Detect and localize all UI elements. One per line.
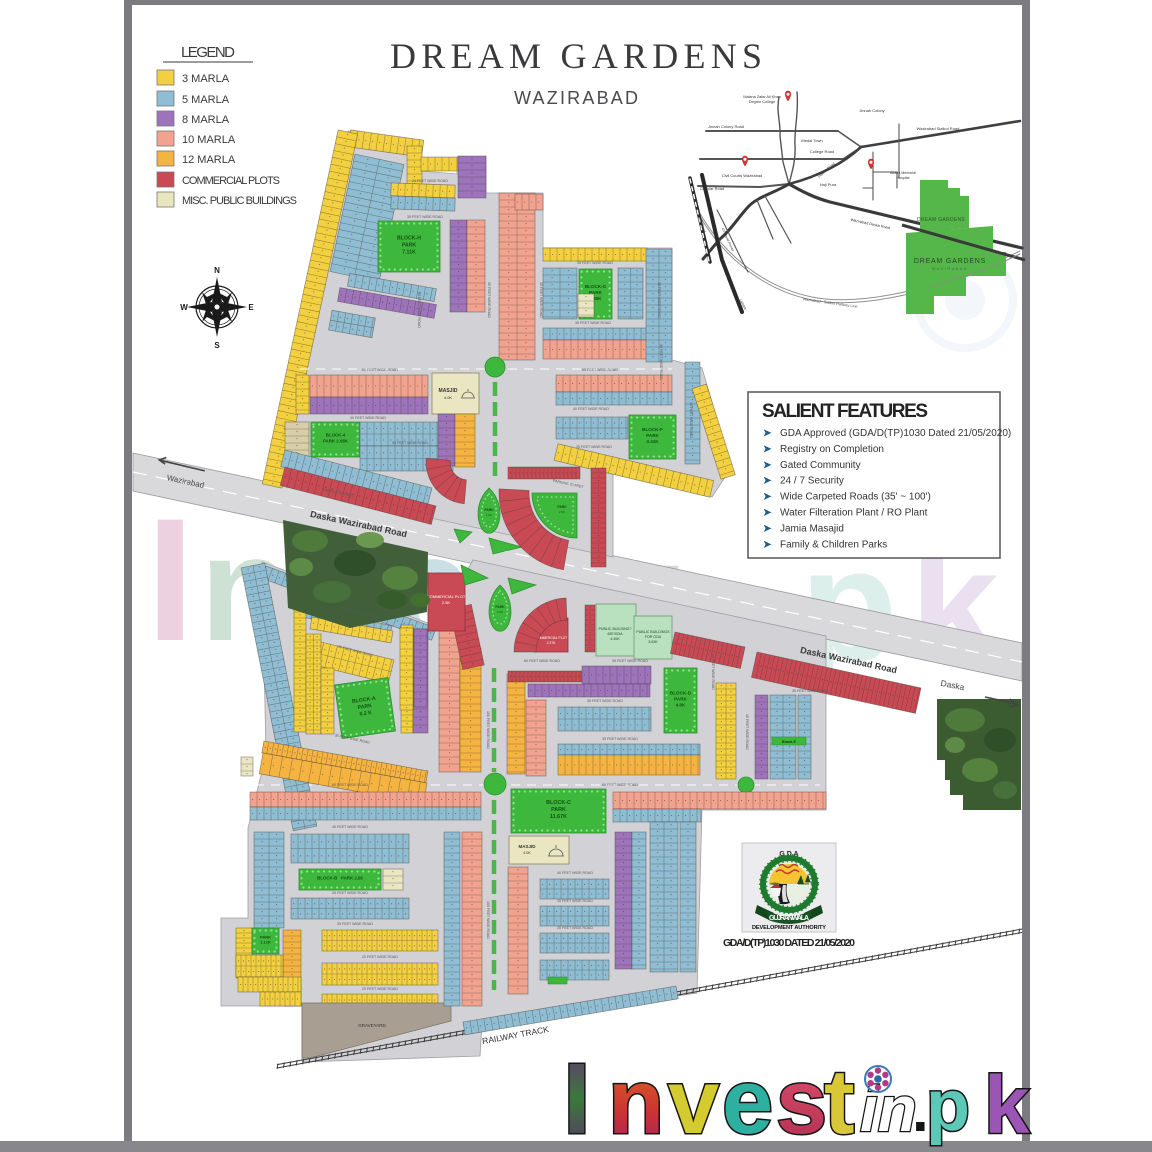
svg-text:35 FEET WIDE ROAD: 35 FEET WIDE ROAD [576, 445, 612, 449]
svg-text:PARK: PARK [674, 697, 687, 702]
svg-text:Gated Community: Gated Community [780, 460, 861, 471]
svg-text:4.0K: 4.0K [523, 851, 531, 855]
svg-text:➤: ➤ [763, 460, 772, 471]
svg-text:n: n [608, 1051, 664, 1152]
svg-text:35 FEET WIDE ROAD: 35 FEET WIDE ROAD [539, 282, 543, 318]
svg-text:BLOCK-C: BLOCK-C [546, 800, 571, 806]
svg-text:35 FEET WIDE ROAD: 35 FEET WIDE ROAD [602, 737, 638, 741]
svg-text:35 FEET WIDE ROAD: 35 FEET WIDE ROAD [487, 282, 491, 318]
svg-text:S: S [214, 341, 220, 350]
svg-text:Medal Town: Medal Town [801, 138, 822, 143]
svg-text:Wazirabad Sialkot Road: Wazirabad Sialkot Road [917, 126, 960, 131]
svg-text:FOR GDA: FOR GDA [645, 635, 662, 639]
svg-text:DREAM GARDENS: DREAM GARDENS [917, 217, 965, 223]
svg-text:3 MARLA: 3 MARLA [182, 73, 230, 85]
svg-text:MISC. PUBLIC BUILDINGS: MISC. PUBLIC BUILDINGS [182, 195, 297, 207]
svg-text:➤: ➤ [763, 508, 772, 519]
svg-text:➤: ➤ [763, 492, 772, 503]
svg-text:2.27K: 2.27K [547, 641, 557, 645]
svg-text:35 FEET WIDE ROAD: 35 FEET WIDE ROAD [392, 441, 428, 445]
svg-text:3.63K: 3.63K [648, 640, 658, 644]
svg-text:SALIENT FEATURES: SALIENT FEATURES [762, 401, 928, 422]
svg-text:I: I [146, 483, 195, 678]
svg-text:GRAVEYARD: GRAVEYARD [358, 1023, 386, 1028]
svg-text:40 FEET WIDE ROAD: 40 FEET WIDE ROAD [573, 407, 609, 411]
svg-text:35 FEET WIDE ROAD: 35 FEET WIDE ROAD [577, 261, 613, 265]
svg-text:100 FEET WIDE ROAD: 100 FEET WIDE ROAD [486, 901, 490, 939]
svg-text:25 FEET WIDE ROAD: 25 FEET WIDE ROAD [332, 891, 368, 895]
svg-text:35 FEET WIDE ROAD: 35 FEET WIDE ROAD [407, 215, 443, 219]
svg-text:Haji Pura: Haji Pura [820, 182, 837, 187]
svg-text:PARK 2.08K: PARK 2.08K [323, 438, 349, 443]
svg-text:LEGEND: LEGEND [181, 44, 235, 61]
svg-text:10 MARLA: 10 MARLA [182, 134, 236, 146]
svg-text:40 FEET WIDE ROAD: 40 FEET WIDE ROAD [557, 871, 593, 875]
svg-text:4.0K: 4.0K [676, 703, 686, 708]
svg-text:20 FEET WIDE ROAD: 20 FEET WIDE ROAD [362, 955, 398, 959]
svg-text:Circular Road: Circular Road [700, 186, 724, 191]
svg-text:35 FEET WIDE ROAD: 35 FEET WIDE ROAD [557, 899, 593, 903]
svg-text:➤: ➤ [763, 476, 772, 487]
svg-text:Attava Memorial: Attava Memorial [890, 171, 916, 175]
svg-text:Water Filteration Plant / RO P: Water Filteration Plant / RO Plant [780, 508, 928, 519]
svg-text:I: I [563, 1043, 591, 1152]
svg-text:k: k [984, 1060, 1030, 1151]
svg-text:PARK: PARK [495, 605, 505, 609]
svg-text:60 FEET WIDE ROAD: 60 FEET WIDE ROAD [362, 368, 398, 372]
svg-text:BLOCK-G: BLOCK-G [585, 284, 607, 289]
svg-text:➤: ➤ [763, 539, 772, 550]
svg-text:p: p [926, 1066, 970, 1146]
svg-text:Jinnah Colony Road: Jinnah Colony Road [708, 124, 744, 129]
svg-text:40 FEET WIDE ROAD: 40 FEET WIDE ROAD [745, 714, 749, 750]
svg-text:4.0K: 4.0K [444, 395, 453, 400]
svg-text:t: t [824, 1051, 855, 1152]
svg-text:BLOCK-D: BLOCK-D [670, 691, 692, 696]
svg-text:2.5K: 2.5K [442, 600, 451, 605]
svg-text:COMMERCIAL PLOTS: COMMERCIAL PLOTS [182, 175, 280, 187]
svg-text:W: W [180, 303, 188, 312]
svg-text:PARK: PARK [484, 508, 494, 512]
svg-text:1.12K: 1.12K [260, 940, 271, 945]
svg-text:40 FEET WIDE ROAD: 40 FEET WIDE ROAD [350, 416, 386, 420]
svg-text:GDA/D(TP)1030 DATED 21/05/2020: GDA/D(TP)1030 DATED 21/05/2020 [723, 937, 855, 949]
svg-text:E: E [248, 303, 254, 312]
svg-text:BLOCK-H: BLOCK-H [397, 236, 421, 242]
svg-text:PARK: PARK [551, 807, 566, 813]
svg-text:Block-E: Block-E [782, 740, 797, 744]
svg-text:Malana Zafar Ali Khan: Malana Zafar Ali Khan [743, 95, 780, 99]
svg-text:Civil Courts Wazirabad: Civil Courts Wazirabad [722, 173, 763, 178]
svg-text:60 FEET WIDE ROAD: 60 FEET WIDE ROAD [524, 659, 560, 663]
svg-text:s: s [776, 1051, 827, 1152]
svg-text:65 FEET WIDE ROAD: 65 FEET WIDE ROAD [582, 368, 618, 372]
svg-text:7.11K: 7.11K [402, 249, 416, 255]
svg-text:40 FEET WIDE ROAD: 40 FEET WIDE ROAD [332, 825, 368, 829]
svg-text:BLOCK-F: BLOCK-F [642, 427, 663, 432]
svg-text:65F/GDA: 65F/GDA [608, 632, 624, 636]
svg-text:25 FEET WIDE ROAD: 25 FEET WIDE ROAD [557, 926, 593, 930]
svg-text:8 MARLA: 8 MARLA [182, 114, 230, 126]
svg-text:35 FEET WIDE ROAD: 35 FEET WIDE ROAD [657, 282, 661, 318]
svg-text:2.0K: 2.0K [497, 610, 503, 614]
svg-text:BLOCK-B PARK 2.66: BLOCK-B PARK 2.66 [317, 876, 363, 881]
svg-text:1.0K: 1.0K [486, 513, 492, 517]
svg-text:v: v [668, 1051, 719, 1152]
svg-text:5 MARLA: 5 MARLA [182, 94, 230, 106]
svg-text:100 FEET WIDE ROAD: 100 FEET WIDE ROAD [486, 711, 490, 749]
svg-text:Degree College: Degree College [749, 100, 775, 104]
svg-text:35 FEET WIDE ROAD: 35 FEET WIDE ROAD [417, 292, 421, 328]
svg-text:➤: ➤ [763, 428, 772, 439]
svg-text:PUBLIC BUILDING?: PUBLIC BUILDING? [599, 627, 632, 631]
svg-text:24 / 7 Security: 24 / 7 Security [780, 476, 844, 487]
svg-text:e: e [722, 1051, 773, 1152]
svg-text:PUBLIC BUILDINGS: PUBLIC BUILDINGS [636, 630, 670, 634]
svg-text:➤: ➤ [763, 444, 772, 455]
svg-text:Registry on Completion: Registry on Completion [780, 444, 884, 455]
svg-text:➤: ➤ [763, 523, 772, 534]
svg-text:24 FEET WIDE ROAD: 24 FEET WIDE ROAD [412, 179, 448, 183]
svg-text:Hospital: Hospital [897, 176, 910, 180]
svg-text:GDA Approved (GDA/D(TP)1030 Da: GDA Approved (GDA/D(TP)1030 Dated 21/05/… [780, 428, 1011, 439]
svg-text:Wide Carpeted Roads (35' ~ 100: Wide Carpeted Roads (35' ~ 100') [780, 492, 931, 503]
svg-text:WAZIRABAD: WAZIRABAD [932, 267, 968, 271]
svg-text:35 FEET WIDE ROAD: 35 FEET WIDE ROAD [575, 321, 611, 325]
svg-text:DEVELOPMENT AUTHORITY: DEVELOPMENT AUTHORITY [752, 925, 826, 931]
svg-text:60 FEET WIDE ROAD: 60 FEET WIDE ROAD [332, 783, 368, 787]
svg-text:20 FEET WIDE ROAD: 20 FEET WIDE ROAD [362, 987, 398, 991]
svg-text:3.41K: 3.41K [646, 439, 659, 444]
svg-text:60 FEET WIDE ROAD: 60 FEET WIDE ROAD [602, 783, 638, 787]
svg-text:35 FEET WIDE ROAD: 35 FEET WIDE ROAD [792, 689, 828, 693]
svg-text:MASJID: MASJID [439, 388, 458, 394]
svg-text:30 FEET WIDE ROAD: 30 FEET WIDE ROAD [659, 344, 663, 380]
svg-text:BLOCK-4: BLOCK-4 [326, 433, 346, 438]
svg-text:PARK: PARK [402, 243, 417, 249]
svg-text:PARK: PARK [646, 433, 659, 438]
svg-text:12 MARLA: 12 MARLA [182, 154, 236, 166]
svg-text:Jinnah Colony: Jinnah Colony [859, 108, 884, 113]
svg-text:Family & Children Parks: Family & Children Parks [780, 539, 887, 550]
svg-text:College Road: College Road [810, 149, 834, 154]
svg-text:2.5K: 2.5K [559, 510, 565, 514]
svg-text:Jamia Masajid: Jamia Masajid [780, 523, 844, 534]
svg-text:35 FEET WIDE ROAD: 35 FEET WIDE ROAD [337, 922, 373, 926]
svg-text:35 FEET WIDE ROAD: 35 FEET WIDE ROAD [587, 699, 623, 703]
svg-text:N: N [214, 266, 220, 275]
svg-text:4.30K: 4.30K [610, 637, 620, 641]
svg-text:40 FEET WIDE ROAD: 40 FEET WIDE ROAD [711, 654, 715, 690]
svg-text:WAZIRABAD: WAZIRABAD [514, 88, 638, 108]
svg-text:11.67K: 11.67K [550, 814, 567, 820]
svg-text:35 FEET WIDE ROAD: 35 FEET WIDE ROAD [612, 659, 648, 663]
svg-text:COMMERCIAL PLOT: COMMERCIAL PLOT [427, 594, 466, 599]
svg-text:MASJID: MASJID [518, 844, 536, 849]
svg-text:GUJRANWALA: GUJRANWALA [769, 915, 809, 922]
svg-text:PARK: PARK [557, 505, 567, 509]
svg-text:35 FEET WIDE ROAD: 35 FEET WIDE ROAD [689, 402, 693, 438]
svg-text:DREAM GARDENS: DREAM GARDENS [914, 258, 986, 265]
